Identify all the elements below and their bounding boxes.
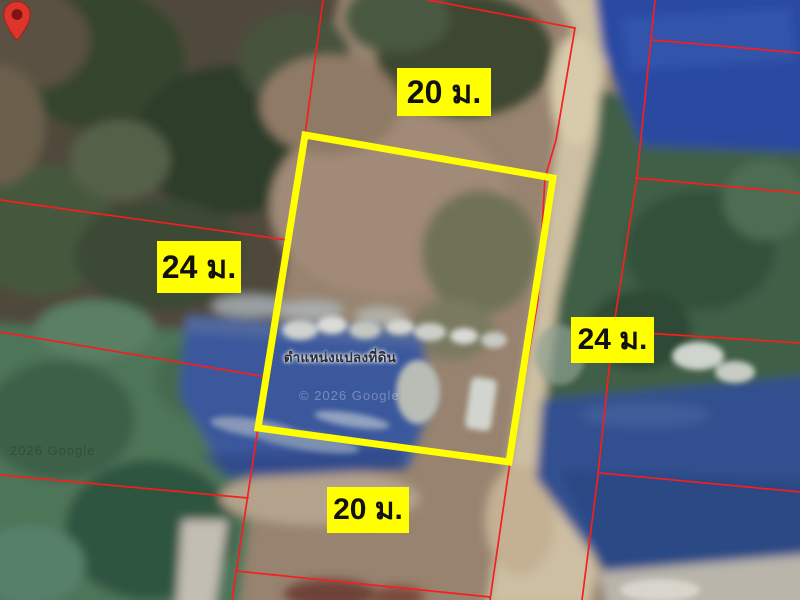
dimension-label-right: 24 ม. <box>571 317 654 363</box>
satellite-map: 20 ม. 24 ม. 24 ม. 20 ม. ตำแหน่งแปลงที่ดิ… <box>0 0 800 600</box>
dimension-label-left: 24 ม. <box>157 241 241 293</box>
pin-caption: ตำแหน่งแปลงที่ดิน <box>272 346 408 368</box>
google-watermark-corner: 2026 Google <box>10 443 95 458</box>
google-watermark-center: © 2026 Google <box>299 388 400 403</box>
dimension-label-top: 20 ม. <box>397 68 491 116</box>
dimension-label-bottom: 20 ม. <box>327 487 409 533</box>
location-pin-icon <box>0 0 34 42</box>
